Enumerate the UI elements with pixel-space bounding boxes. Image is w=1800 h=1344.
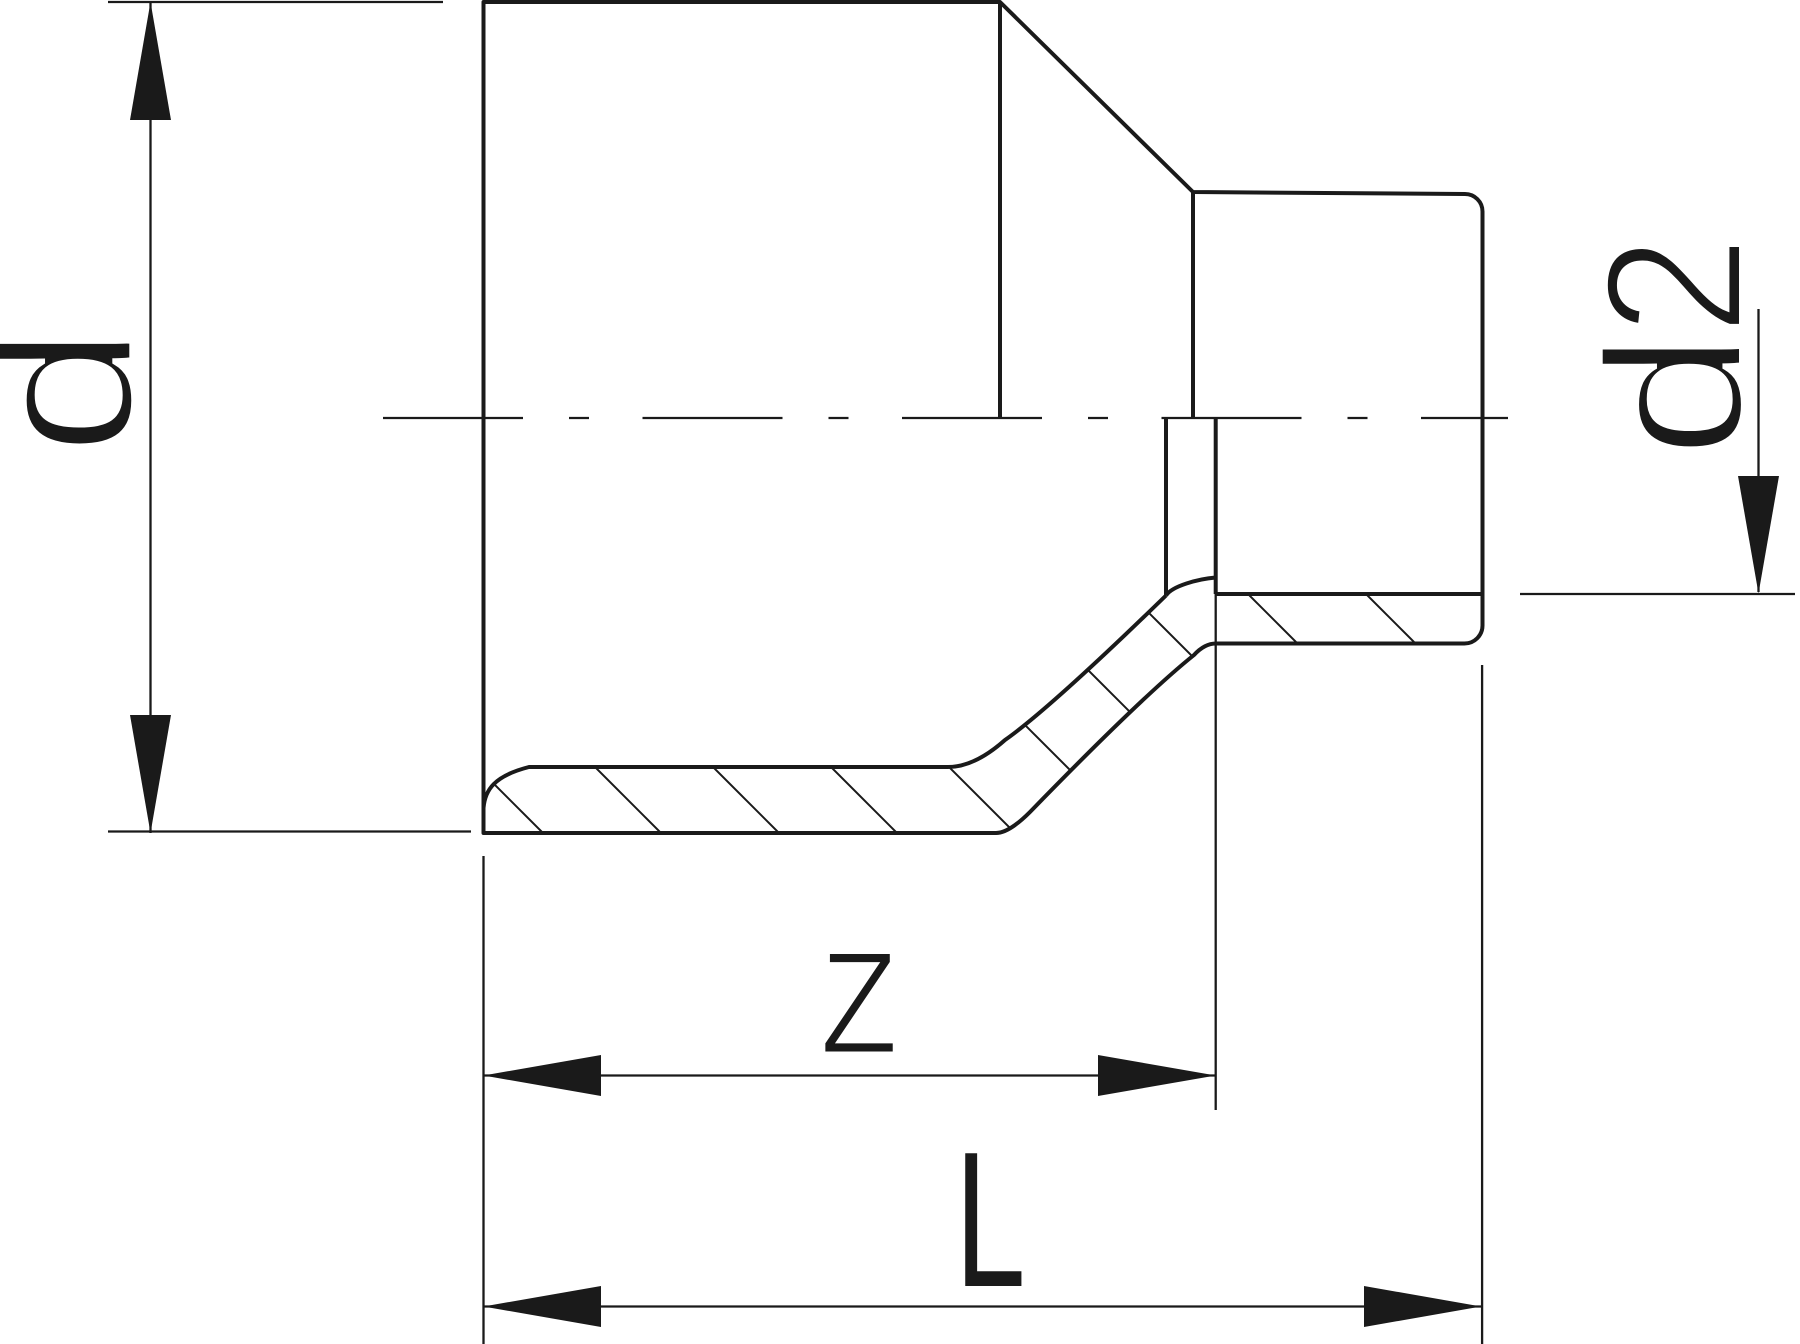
- svg-text:d: d: [1566, 331, 1784, 459]
- svg-text:d: d: [0, 325, 175, 456]
- svg-text:2: 2: [1565, 236, 1783, 335]
- svg-text:Z: Z: [820, 922, 898, 1085]
- svg-text:L: L: [955, 1111, 1026, 1327]
